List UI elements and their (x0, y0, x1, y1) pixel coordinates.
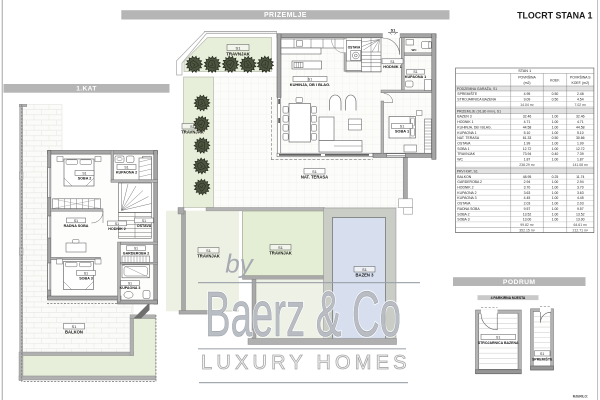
svg-text:S1: S1 (206, 249, 211, 253)
svg-text:SOBA 3: SOBA 3 (79, 276, 93, 280)
svg-text:2.94: 2.94 (524, 180, 531, 184)
svg-text:TRAVNJAK: TRAVNJAK (197, 254, 220, 259)
svg-text:1.00: 1.00 (552, 142, 559, 146)
svg-text:1.87: 1.87 (524, 158, 531, 162)
svg-text:9.57: 9.57 (577, 207, 584, 211)
svg-text:44.58: 44.58 (576, 125, 585, 129)
svg-text:1.00: 1.00 (552, 158, 559, 162)
svg-text:13.52: 13.52 (523, 212, 532, 216)
svg-text:TRAVNJAK: TRAVNJAK (269, 251, 292, 256)
svg-text:1.00: 1.00 (552, 196, 559, 200)
svg-text:13.00: 13.00 (523, 218, 532, 222)
svg-text:HODNIK 1: HODNIK 1 (383, 64, 402, 69)
svg-text:2.94: 2.94 (577, 180, 584, 184)
svg-text:1.00: 1.00 (552, 131, 559, 135)
svg-text:HODNIK 1: HODNIK 1 (457, 120, 473, 124)
svg-text:7.39: 7.39 (577, 152, 584, 156)
svg-text:S1: S1 (308, 78, 312, 82)
svg-text:S1: S1 (236, 45, 242, 50)
svg-text:TRAVNJAK: TRAVNJAK (226, 52, 250, 57)
svg-text:GARDEROBA 2: GARDEROBA 2 (123, 251, 149, 255)
svg-text:KUPAONA 2: KUPAONA 2 (457, 191, 476, 195)
svg-text:2.03: 2.03 (577, 202, 584, 206)
svg-text:KUPAONA 3: KUPAONA 3 (457, 196, 476, 200)
svg-text:0.50: 0.50 (552, 97, 559, 101)
svg-text:S1: S1 (115, 222, 119, 226)
svg-text:KOEF.: KOEF. (550, 78, 560, 82)
svg-text:S1: S1 (362, 268, 367, 272)
svg-text:POVRŠINA S: POVRŠINA S (570, 75, 591, 80)
svg-text:by: by (225, 249, 254, 279)
svg-text:0.50: 0.50 (552, 136, 559, 140)
svg-text:(m2): (m2) (524, 81, 531, 85)
svg-text:KUHINJA, DB I BLAG.: KUHINJA, DB I BLAG. (290, 82, 330, 87)
svg-text:PRVI KAT, S1: PRVI KAT, S1 (457, 170, 478, 174)
svg-text:GARDEROBA 2: GARDEROBA 2 (457, 180, 482, 184)
svg-text:30.66: 30.66 (576, 136, 585, 140)
svg-text:32.46: 32.46 (523, 115, 532, 119)
svg-text:2.48: 2.48 (577, 92, 584, 96)
svg-text:5.10: 5.10 (577, 131, 584, 135)
svg-text:SOBA 2: SOBA 2 (457, 212, 469, 216)
svg-text:1.99: 1.99 (577, 142, 584, 146)
svg-text:HODNIK 2: HODNIK 2 (108, 227, 126, 231)
svg-text:13.00: 13.00 (576, 218, 585, 222)
svg-text:BALKON: BALKON (65, 330, 83, 335)
svg-text:KUPAONA 2: KUPAONA 2 (116, 170, 137, 174)
svg-text:OSTAVA: OSTAVA (457, 142, 471, 146)
svg-text:238.29 m²: 238.29 m² (519, 163, 535, 167)
svg-text:LUXURY HOMES: LUXURY HOMES (201, 352, 411, 374)
svg-text:352.15 m²: 352.15 m² (519, 228, 535, 232)
svg-text:S1: S1 (312, 170, 317, 174)
svg-text:POVRŠINA: POVRŠINA (518, 75, 536, 80)
svg-text:44.58: 44.58 (523, 125, 532, 129)
svg-text:48.95: 48.95 (523, 175, 532, 179)
svg-text:13.52: 13.52 (576, 212, 585, 216)
svg-text:4 PARKIRNA MJESTA: 4 PARKIRNA MJESTA (491, 296, 526, 300)
svg-text:1.00: 1.00 (552, 147, 559, 151)
svg-text:4.45: 4.45 (524, 196, 531, 200)
svg-text:1.00: 1.00 (552, 180, 559, 184)
svg-text:5.10: 5.10 (524, 131, 531, 135)
svg-text:RADNA SOBA: RADNA SOBA (457, 207, 480, 211)
svg-text:PODRUM: PODRUM (503, 279, 536, 286)
svg-text:1.00: 1.00 (552, 218, 559, 222)
svg-text:S1: S1 (72, 325, 77, 329)
svg-text:OSTAVA: OSTAVA (457, 202, 471, 206)
svg-text:11.74: 11.74 (576, 175, 584, 179)
svg-text:64.61 m²: 64.61 m² (574, 223, 588, 227)
svg-text:12.72: 12.72 (523, 147, 532, 151)
svg-text:KUPAONA 1: KUPAONA 1 (457, 131, 476, 135)
svg-text:61.33: 61.33 (523, 136, 532, 140)
svg-text:12.72: 12.72 (576, 147, 585, 151)
svg-text:S1: S1 (124, 165, 128, 169)
svg-text:99.82 m²: 99.82 m² (520, 223, 534, 227)
svg-text:1.00: 1.00 (552, 115, 559, 119)
svg-text:141.08 m²: 141.08 m² (573, 163, 589, 167)
svg-text:PRIZEMLJE (91,80 mnv), S1: PRIZEMLJE (91,80 mnv), S1 (457, 110, 501, 114)
svg-text:1.KAT: 1.KAT (76, 86, 97, 93)
svg-text:1.00: 1.00 (552, 120, 559, 124)
svg-text:1.00: 1.00 (552, 202, 559, 206)
svg-text:S1: S1 (496, 335, 500, 339)
svg-text:SPREMIŠTE: SPREMIŠTE (532, 356, 553, 361)
svg-text:4.71: 4.71 (577, 120, 584, 124)
svg-text:9.09: 9.09 (524, 97, 531, 101)
svg-text:BAZEN 3: BAZEN 3 (356, 273, 375, 278)
svg-text:4.95: 4.95 (524, 92, 531, 96)
svg-text:STROJARNICA BAZENA: STROJARNICA BAZENA (457, 97, 496, 101)
svg-text:PODZEMNA GARAŽA, S1: PODZEMNA GARAŽA, S1 (457, 86, 498, 91)
svg-text:STROJARNICA BAZENA: STROJARNICA BAZENA (478, 341, 519, 345)
svg-text:KUHINJA, DB I BLAG.: KUHINJA, DB I BLAG. (457, 125, 491, 129)
svg-text:1.00: 1.00 (552, 212, 559, 216)
svg-text:RADNA SOBA: RADNA SOBA (64, 224, 89, 228)
svg-text:0.25: 0.25 (552, 175, 559, 179)
svg-text:KUPAONA 3: KUPAONA 3 (120, 286, 141, 290)
svg-text:TRAVNJAK: TRAVNJAK (457, 152, 475, 156)
svg-text:BALKON: BALKON (457, 175, 471, 179)
svg-text:S1: S1 (74, 219, 78, 223)
svg-text:S1: S1 (128, 281, 132, 285)
svg-text:7.02 m²: 7.02 m² (574, 103, 587, 107)
svg-text:1.00: 1.00 (552, 207, 559, 211)
svg-text:1.00: 1.00 (552, 186, 559, 190)
svg-text:KUPAONA 1: KUPAONA 1 (405, 75, 426, 79)
svg-text:S1: S1 (142, 219, 146, 223)
svg-text:73.94: 73.94 (523, 152, 532, 156)
svg-text:BAZEN 3: BAZEN 3 (457, 115, 471, 119)
svg-text:212.71 m²: 212.71 m² (573, 228, 589, 232)
svg-text:OSTAVA: OSTAVA (348, 46, 361, 50)
svg-text:S1: S1 (84, 271, 88, 275)
svg-text:S1: S1 (134, 246, 138, 250)
svg-text:HODNIK 2: HODNIK 2 (457, 186, 473, 190)
svg-text:2.03: 2.03 (524, 202, 531, 206)
svg-text:4.45: 4.45 (577, 196, 584, 200)
svg-text:3.63: 3.63 (524, 191, 531, 195)
svg-text:4.54: 4.54 (577, 97, 584, 101)
svg-text:3.70: 3.70 (524, 186, 531, 190)
svg-text:SOBA 3: SOBA 3 (457, 218, 469, 222)
svg-text:4.71: 4.71 (524, 120, 531, 124)
svg-text:S1: S1 (278, 246, 283, 250)
svg-text:Baerz & Co: Baerz & Co (205, 278, 401, 350)
svg-text:S1: S1 (391, 29, 396, 33)
svg-text:0.40: 0.40 (552, 152, 559, 156)
svg-text:STAN 1: STAN 1 (518, 69, 531, 73)
svg-text:TLOCRT STANA 1: TLOCRT STANA 1 (517, 11, 592, 21)
svg-text:NAT. TERASA: NAT. TERASA (301, 175, 328, 180)
svg-text:OSTAVA: OSTAVA (137, 224, 152, 228)
svg-text:NAT. TERASA: NAT. TERASA (457, 136, 480, 140)
svg-text:0.50: 0.50 (552, 92, 559, 96)
svg-text:1.00: 1.00 (552, 191, 559, 195)
svg-text:SPREMIŠTE: SPREMIŠTE (457, 91, 478, 96)
svg-text:SOBA 2: SOBA 2 (78, 176, 92, 180)
svg-text:SOBA 1: SOBA 1 (395, 129, 410, 134)
svg-text:PRIZEMLJE: PRIZEMLJE (264, 12, 307, 19)
svg-text:WC: WC (457, 158, 463, 162)
svg-text:S1: S1 (413, 70, 417, 74)
svg-text:3.70: 3.70 (577, 186, 584, 190)
svg-text:KOEF. (m2): KOEF. (m2) (571, 81, 589, 85)
svg-text:1.99: 1.99 (524, 142, 531, 146)
svg-text:32.46: 32.46 (576, 115, 585, 119)
svg-text:1.00: 1.00 (552, 125, 559, 129)
svg-text:S1: S1 (540, 352, 544, 356)
svg-text:MJERILO:: MJERILO: (573, 395, 588, 399)
svg-text:WC: WC (412, 48, 418, 52)
svg-text:3.63: 3.63 (577, 191, 584, 195)
svg-text:9.57: 9.57 (524, 207, 531, 211)
svg-text:14.04 m²: 14.04 m² (520, 103, 534, 107)
svg-text:1.87: 1.87 (577, 158, 584, 162)
svg-text:SOBA 1: SOBA 1 (457, 147, 469, 151)
svg-text:S1: S1 (82, 171, 86, 175)
